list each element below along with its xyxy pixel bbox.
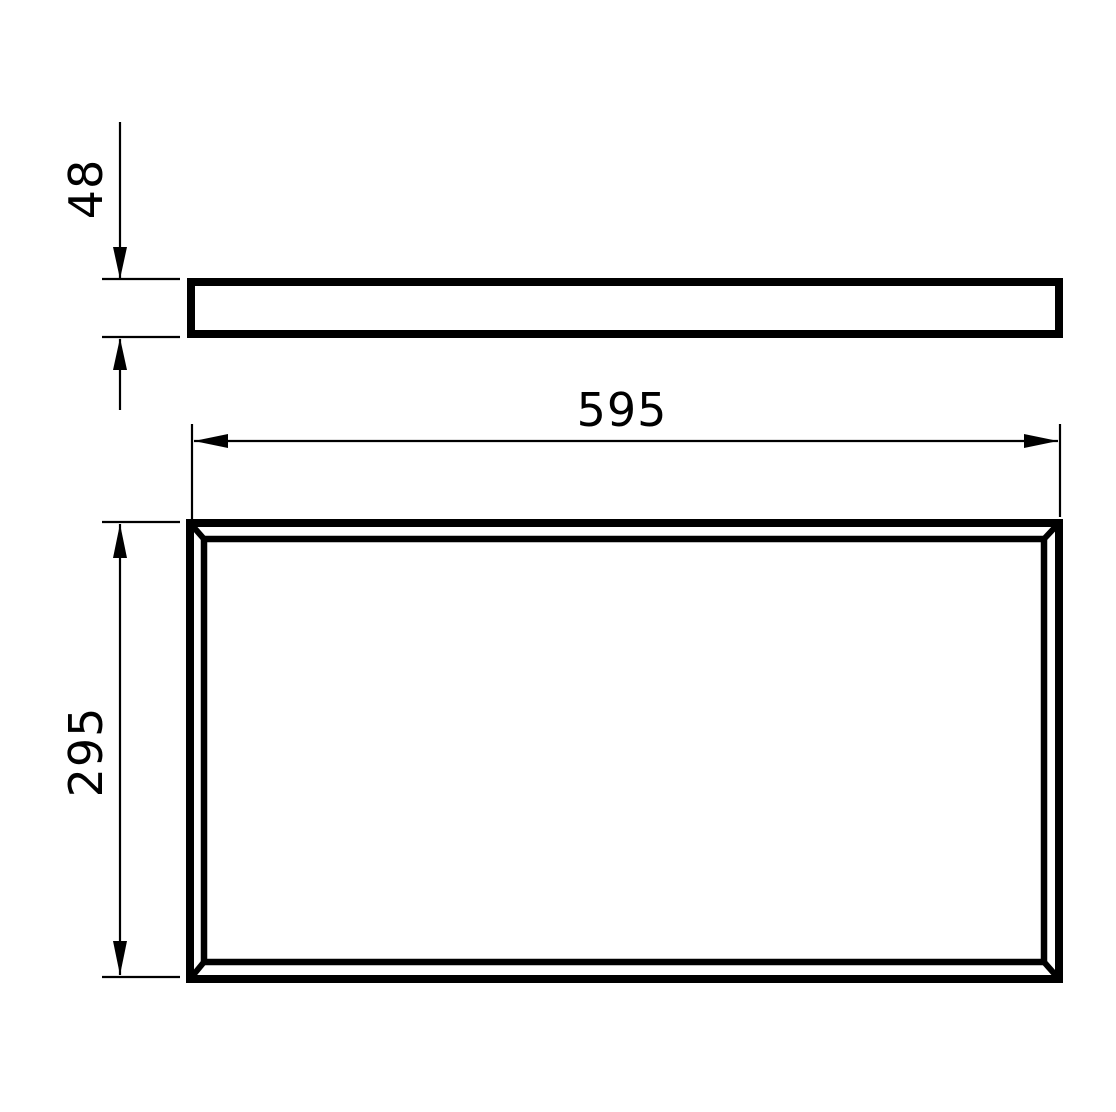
arrowhead-down-icon xyxy=(113,941,127,975)
front-view-inner-frame xyxy=(204,539,1044,962)
front-view-outer-frame xyxy=(190,523,1059,979)
arrowhead-right-icon xyxy=(1024,434,1058,448)
height-dimension-label: 295 xyxy=(63,707,109,798)
drawing-canvas xyxy=(0,0,1116,1112)
side-view-outline xyxy=(191,282,1059,334)
arrowhead-up-icon xyxy=(113,338,127,370)
width-dimension-label: 595 xyxy=(577,387,668,433)
arrowhead-left-icon xyxy=(194,434,228,448)
thickness-dimension-label: 48 xyxy=(63,159,109,220)
arrowhead-up-icon xyxy=(113,524,127,558)
arrowhead-down-icon xyxy=(113,247,127,279)
technical-drawing: 48 595 295 xyxy=(0,0,1116,1112)
